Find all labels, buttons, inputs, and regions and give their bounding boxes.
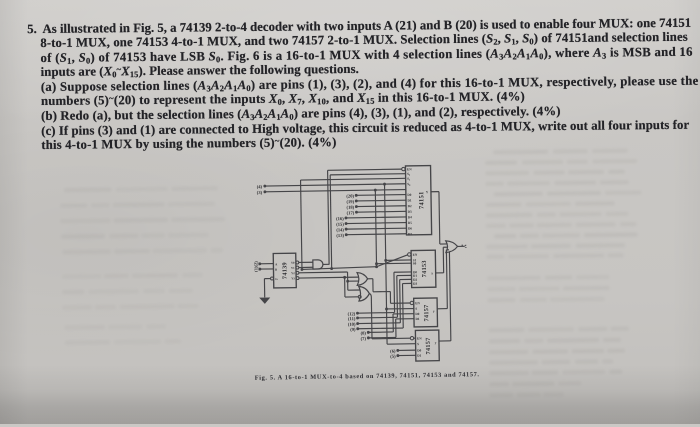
svg-text:D4: D4 (408, 215, 412, 219)
svg-text:EN: EN (413, 253, 418, 257)
svg-text:S: S (415, 307, 417, 311)
svg-text:(20): (20) (346, 193, 354, 198)
svg-text:y: y (433, 309, 435, 313)
svg-text:D1: D1 (417, 354, 421, 358)
svg-text:y: y (435, 341, 437, 345)
svg-text:74157: 74157 (423, 304, 430, 321)
svg-text:Y1: Y1 (291, 266, 295, 270)
svg-text:D0: D0 (407, 193, 411, 197)
svg-text:S0: S0 (407, 182, 411, 187)
svg-text:D1: D1 (407, 198, 411, 202)
svg-text:S: S (417, 342, 419, 346)
svg-text:(18): (18) (346, 205, 354, 210)
svg-text:D3: D3 (413, 282, 417, 286)
svg-text:Fig. 5. A 16-to-1 MUX-to-4 bas: Fig. 5. A 16-to-1 MUX-to-4 based on 7413… (255, 371, 480, 382)
svg-text:(14): (14) (336, 227, 344, 232)
svg-text:EN: EN (407, 167, 412, 171)
svg-text:EN: EN (417, 336, 422, 340)
svg-text:(2): (2) (253, 261, 258, 267)
svg-text:(4): (4) (257, 184, 263, 189)
svg-text:74139: 74139 (281, 262, 288, 279)
svg-text:D2: D2 (408, 204, 412, 208)
svg-text:74153: 74153 (421, 260, 428, 277)
svg-text:(7): (7) (361, 336, 367, 341)
svg-text:D1: D1 (415, 317, 419, 321)
svg-text:D7: D7 (408, 232, 412, 236)
svg-text:(17): (17) (347, 210, 355, 215)
svg-text:S0: S0 (413, 261, 417, 265)
svg-text:Y0: Y0 (291, 261, 295, 265)
svg-text:A: A (275, 262, 278, 266)
svg-text:G: G (275, 277, 278, 281)
svg-text:D0: D0 (417, 348, 421, 352)
svg-text:D0: D0 (415, 312, 419, 316)
svg-text:(3): (3) (257, 190, 263, 195)
svg-text:(19): (19) (346, 199, 354, 204)
svg-text:(1): (1) (253, 266, 258, 272)
svg-text:74157: 74157 (425, 337, 432, 354)
svg-text:y: y (431, 271, 433, 275)
svg-text:Y2: Y2 (291, 271, 295, 275)
svg-text:Y: Y (426, 190, 429, 194)
svg-text:D3: D3 (408, 210, 412, 214)
svg-text:(15): (15) (336, 222, 344, 227)
svg-text:D5: D5 (408, 221, 412, 225)
svg-text:(16): (16) (336, 216, 344, 221)
svg-text:(8): (8) (361, 331, 367, 336)
svg-text:S1: S1 (407, 177, 411, 182)
svg-text:(11): (11) (348, 316, 356, 321)
svg-text:74151: 74151 (418, 191, 425, 209)
svg-text:EN: EN (415, 301, 420, 305)
svg-text:(9): (9) (350, 327, 356, 332)
svg-text:(5): (5) (390, 354, 396, 359)
svg-text:D6: D6 (408, 226, 412, 230)
svg-text:(13): (13) (336, 233, 344, 238)
svg-text:B: B (275, 268, 277, 272)
svg-text:Y3: Y3 (291, 276, 295, 280)
